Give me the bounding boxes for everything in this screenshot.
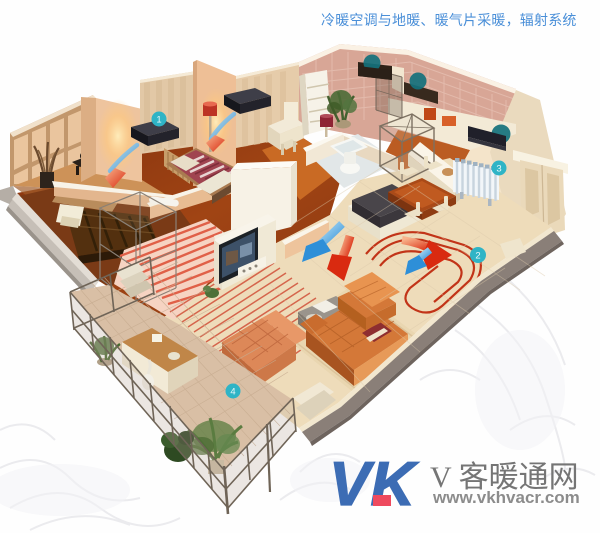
svg-text:www.vkhvacr.com: www.vkhvacr.com <box>432 488 580 507</box>
svg-text:1: 1 <box>156 115 161 126</box>
svg-text:冷暖空调与地暖、暖气片采暖，辐射系统: 冷暖空调与地暖、暖气片采暖，辐射系统 <box>321 12 577 28</box>
svg-text:2: 2 <box>475 251 480 262</box>
svg-text:3: 3 <box>496 164 501 175</box>
svg-text:4: 4 <box>230 387 235 398</box>
svg-text:VK: VK <box>329 450 419 519</box>
